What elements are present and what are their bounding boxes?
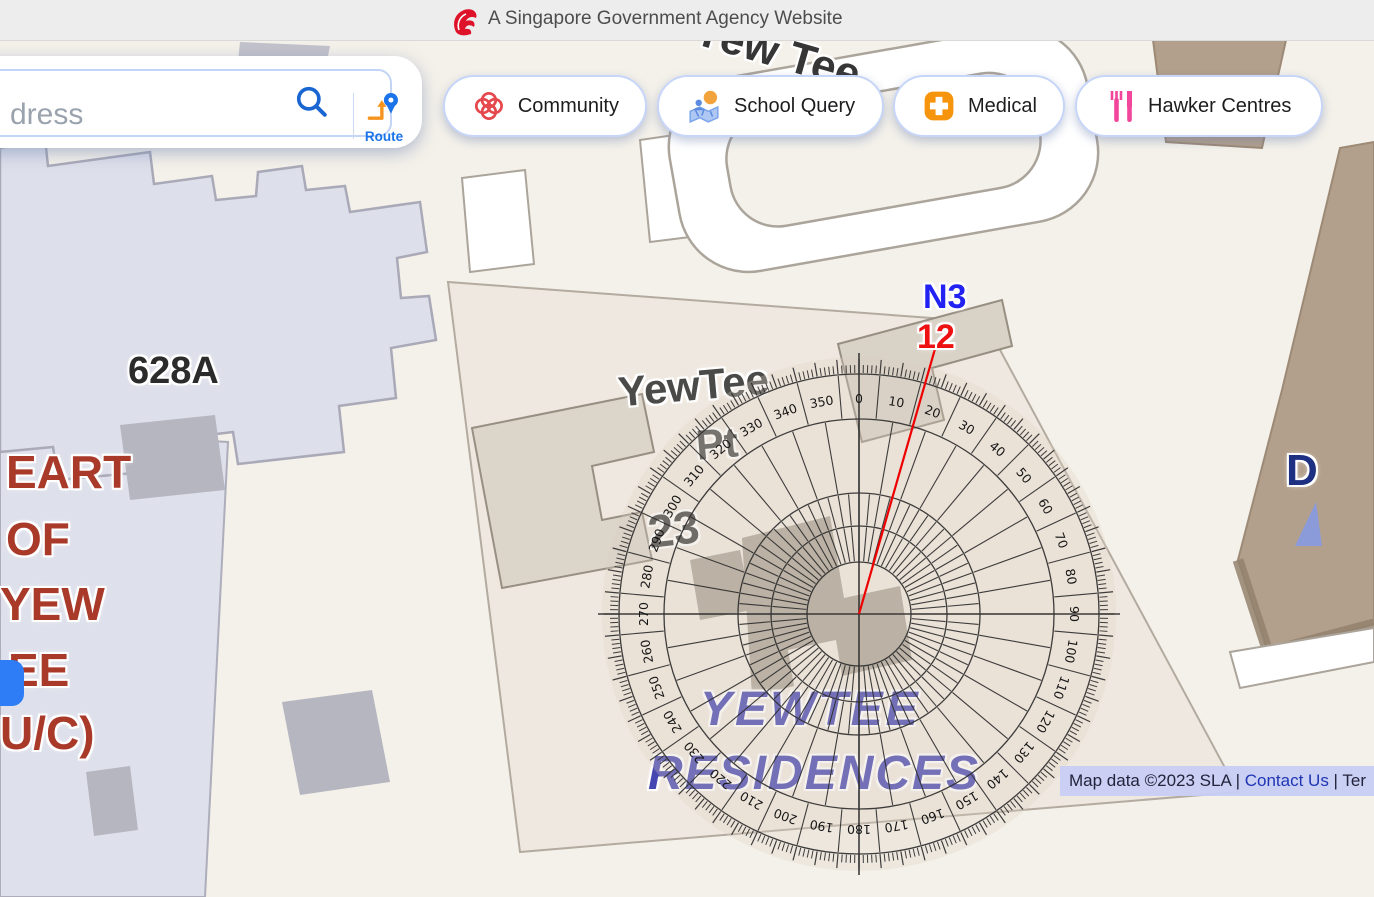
community-button[interactable]: Community [443,75,647,137]
gov-banner-text: A Singapore Government Agency Website [488,8,843,30]
contact-us-link[interactable]: Contact Us [1245,771,1329,790]
bearing-marker-label: N3 [923,278,966,317]
route-button[interactable]: Route [361,89,407,145]
search-placeholder: dress [10,98,83,132]
protractor-degree-label: 80 [1062,567,1080,585]
protractor-degree-label: 10 [887,393,905,411]
community-label: Community [518,95,619,118]
school-query-button[interactable]: School Query [657,75,884,137]
route-label: Route [361,129,407,144]
search-card: dress Route [0,56,422,148]
school-query-icon [687,89,721,123]
hawker-centres-button[interactable]: Hawker Centres [1075,75,1323,137]
singapore-lion-icon [450,6,480,36]
attribution-text: Map data ©2023 SLA | [1069,771,1245,790]
search-icon[interactable] [295,85,329,119]
search-route-divider [353,93,354,139]
protractor-degree-label: 90 [1067,606,1082,622]
school-query-label: School Query [734,95,855,118]
attribution-suffix: | Ter [1329,771,1366,790]
bearing-value-label: 12 [917,318,955,357]
medical-button[interactable]: Medical [893,75,1065,137]
protractor-degree-label: 270 [636,602,651,626]
medical-label: Medical [968,95,1037,118]
gov-banner: A Singapore Government Agency Website [0,0,1374,41]
route-icon [366,89,400,127]
fork-knife-icon [1105,89,1135,123]
map-attribution: Map data ©2023 SLA | Contact Us | Ter [1060,766,1374,796]
community-icon [473,90,505,122]
protractor-degree-label: 180 [847,822,871,837]
hawker-centres-label: Hawker Centres [1148,95,1291,118]
onemap-app: { "header": { "banner": "A Singapore Gov… [0,0,1374,897]
medical-cross-icon [923,90,955,122]
search-input[interactable]: dress Route [0,69,392,137]
protractor-degree-label: 0 [855,391,863,406]
